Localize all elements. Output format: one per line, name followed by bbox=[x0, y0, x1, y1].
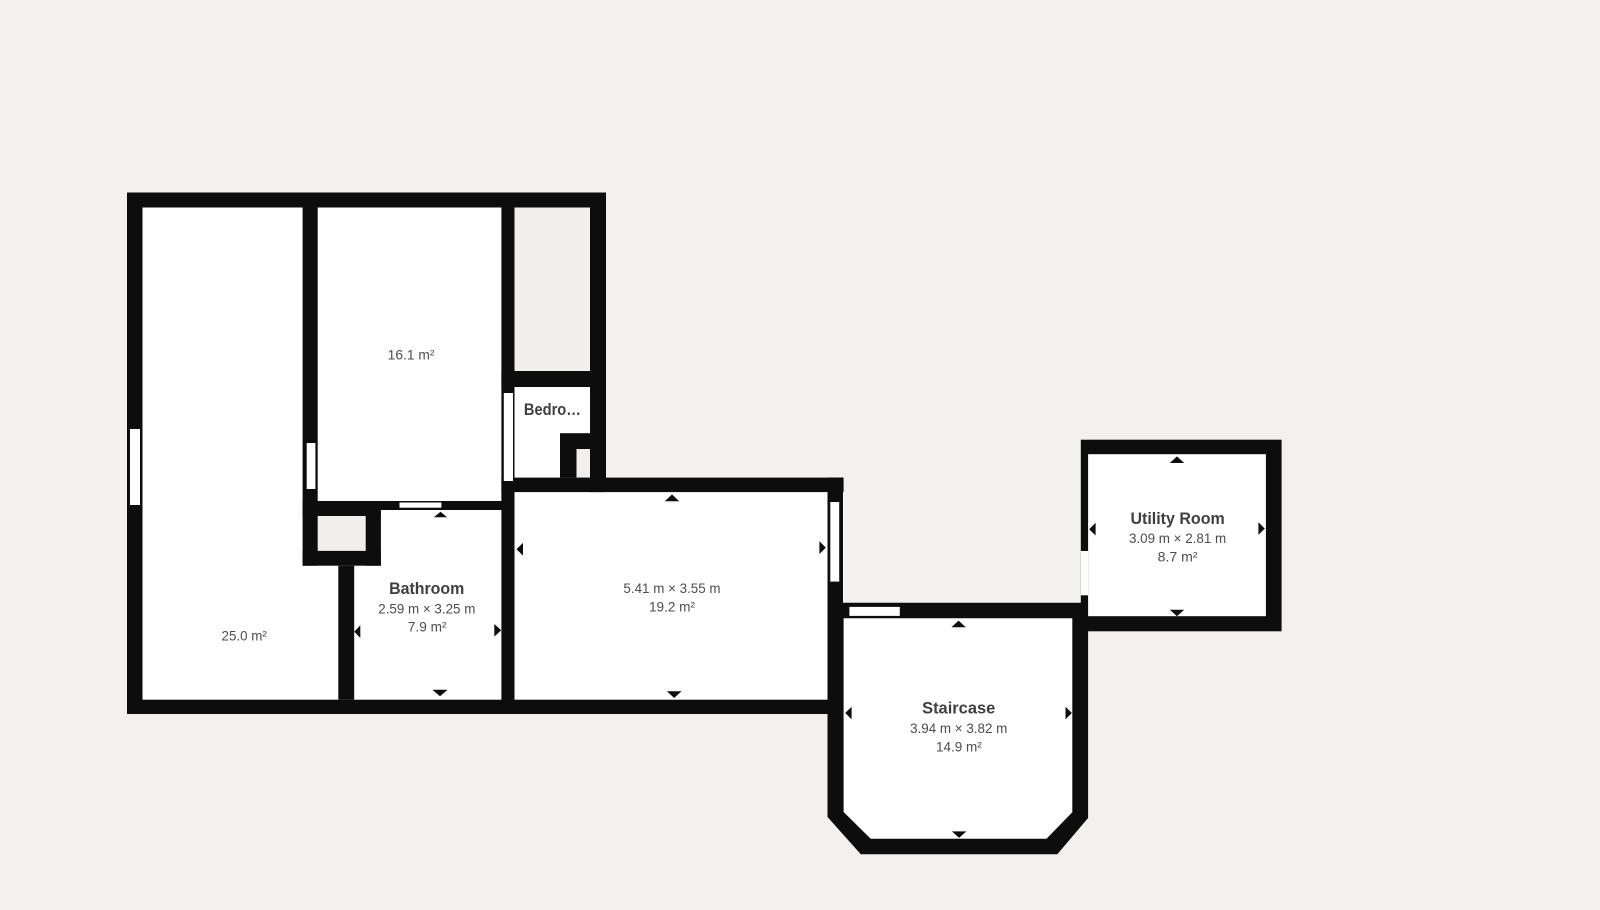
svg-text:7.9 m²: 7.9 m² bbox=[408, 619, 447, 635]
svg-text:2.59 m × 3.25 m: 2.59 m × 3.25 m bbox=[378, 600, 475, 616]
svg-text:Staircase: Staircase bbox=[922, 698, 995, 717]
svg-text:5.41 m × 3.55 m: 5.41 m × 3.55 m bbox=[623, 580, 720, 596]
svg-text:19.2 m²: 19.2 m² bbox=[649, 598, 695, 614]
svg-text:Utility Room: Utility Room bbox=[1130, 509, 1224, 528]
svg-text:3.09 m × 2.81 m: 3.09 m × 2.81 m bbox=[1129, 530, 1226, 546]
svg-text:25.0 m²: 25.0 m² bbox=[222, 628, 268, 644]
svg-text:16.1 m²: 16.1 m² bbox=[388, 347, 435, 363]
svg-text:Bathroom: Bathroom bbox=[389, 579, 464, 598]
svg-text:8.7 m²: 8.7 m² bbox=[1158, 549, 1198, 565]
svg-text:14.9 m²: 14.9 m² bbox=[936, 739, 982, 755]
svg-text:Bedro…: Bedro… bbox=[524, 400, 581, 419]
svg-text:3.94 m × 3.82 m: 3.94 m × 3.82 m bbox=[910, 720, 1007, 736]
